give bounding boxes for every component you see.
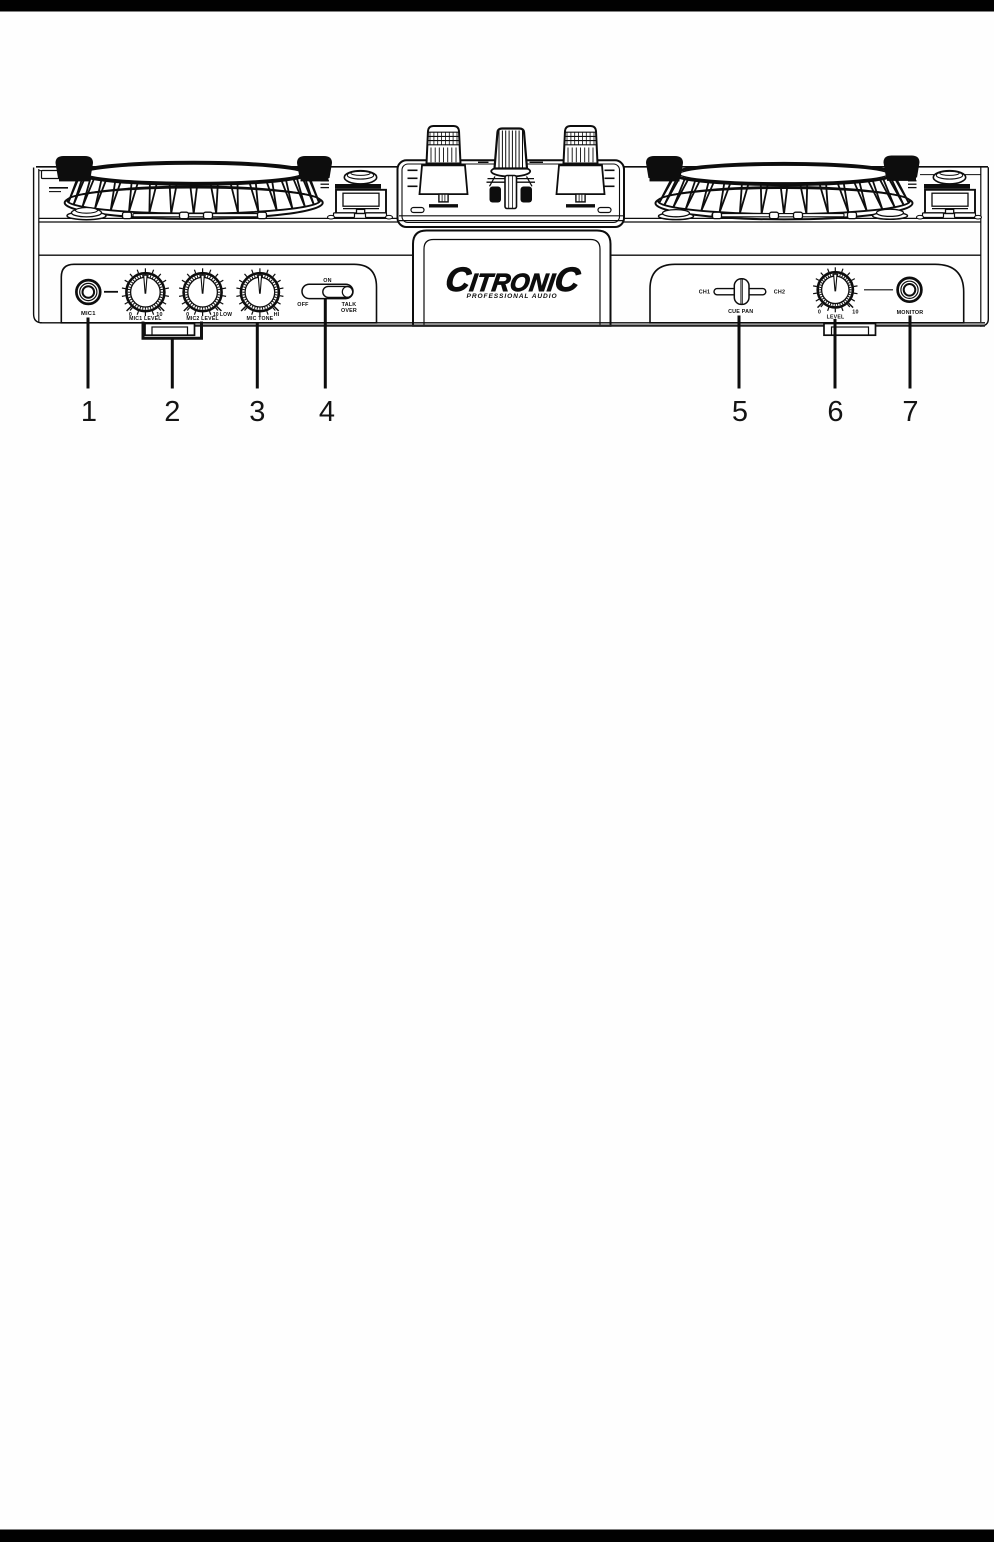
svg-text:10: 10 [852, 310, 858, 316]
svg-text:OFF: OFF [297, 302, 309, 308]
svg-text:ON: ON [323, 278, 332, 284]
svg-text:TALK: TALK [342, 302, 357, 308]
svg-text:MONITOR: MONITOR [897, 310, 924, 316]
svg-text:3: 3 [249, 396, 265, 428]
svg-text:LOW: LOW [220, 312, 232, 318]
svg-text:MIC1: MIC1 [81, 311, 96, 317]
svg-text:CH1: CH1 [699, 290, 710, 296]
svg-text:MIC2 LEVEL: MIC2 LEVEL [186, 316, 219, 322]
svg-text:1: 1 [81, 396, 97, 428]
svg-text:2: 2 [164, 396, 180, 428]
svg-text:MIC1 LEVEL: MIC1 LEVEL [129, 316, 162, 322]
svg-text:HI: HI [274, 312, 280, 318]
svg-text:5: 5 [732, 396, 748, 428]
svg-text:PROFESSIONAL AUDIO: PROFESSIONAL AUDIO [467, 293, 558, 300]
svg-text:4: 4 [319, 396, 335, 428]
svg-text:6: 6 [827, 396, 843, 428]
svg-text:0: 0 [818, 310, 821, 316]
svg-text:OVER: OVER [341, 308, 357, 314]
svg-text:7: 7 [902, 396, 918, 428]
svg-text:CUE PAN: CUE PAN [728, 309, 753, 315]
svg-text:CH2: CH2 [774, 290, 785, 296]
svg-text:MIC TONE: MIC TONE [246, 316, 273, 322]
